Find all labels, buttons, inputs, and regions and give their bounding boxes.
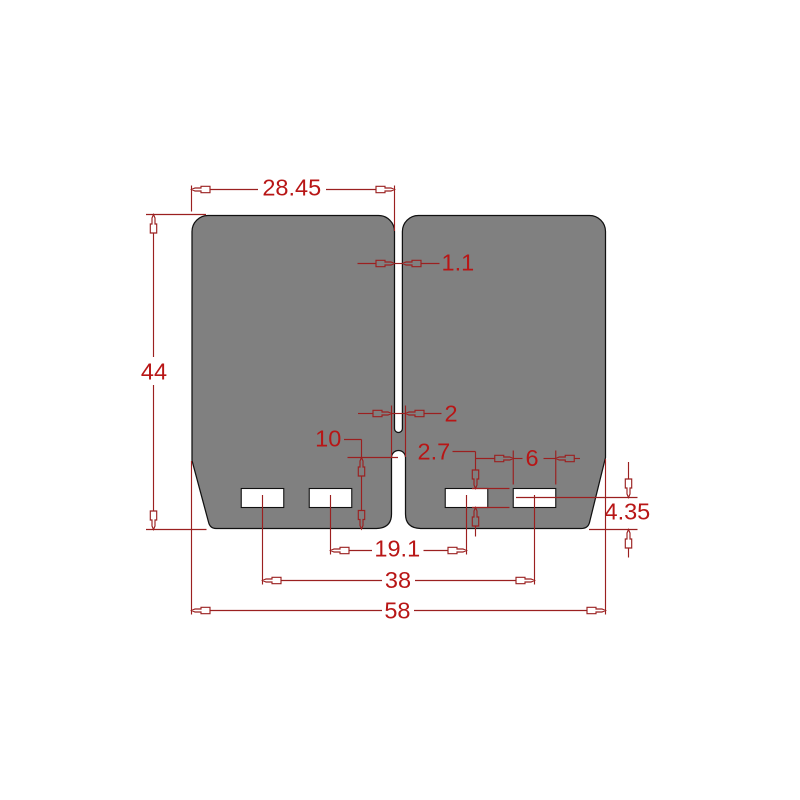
svg-text:10: 10 <box>315 426 341 452</box>
svg-text:58: 58 <box>384 598 410 624</box>
svg-text:38: 38 <box>385 567 411 593</box>
svg-text:19.1: 19.1 <box>374 536 420 562</box>
svg-text:1.1: 1.1 <box>442 250 475 276</box>
svg-text:4.35: 4.35 <box>605 499 651 525</box>
svg-text:44: 44 <box>141 358 167 384</box>
svg-text:2.7: 2.7 <box>418 439 451 465</box>
svg-text:6: 6 <box>525 445 538 471</box>
svg-text:28.45: 28.45 <box>262 175 321 201</box>
svg-text:2: 2 <box>445 401 458 427</box>
